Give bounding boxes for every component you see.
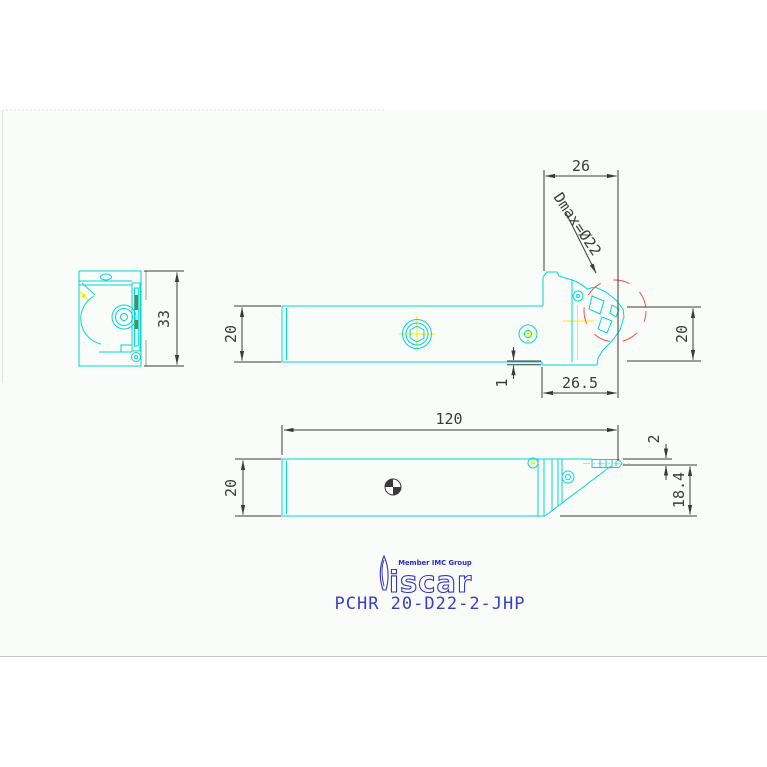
dim-33-text: 33 <box>155 310 173 328</box>
dim-26-text: 26 <box>572 157 590 175</box>
dim-20l-text: 20 <box>222 325 240 343</box>
member-imc-group-text: Member IMC Group <box>398 559 472 567</box>
technical-drawing-canvas: 26 20 20 1 26.5 33 120 20 2 18.4 Dmax=Ø2… <box>0 0 767 767</box>
end-view-insert-mark-1 <box>135 295 138 310</box>
dim-1-text: 1 <box>493 378 511 387</box>
dim-20b-text: 20 <box>222 479 240 497</box>
end-view-insert-mark-2 <box>135 320 138 329</box>
dim-26p5-text: 26.5 <box>562 374 598 392</box>
centroid-symbol <box>385 479 401 495</box>
cad-drawing-page: 26 20 20 1 26.5 33 120 20 2 18.4 Dmax=Ø2… <box>0 0 767 767</box>
dim-18p4-text: 18.4 <box>670 472 688 508</box>
dim-20r-text: 20 <box>673 325 691 343</box>
part-number: PCHR 20-D22-2-JHP <box>335 594 526 614</box>
bottom-screw-center-dot <box>531 461 535 465</box>
end-view-center-dot <box>82 294 86 298</box>
dim-2-text: 2 <box>645 434 663 443</box>
dim-120-text: 120 <box>435 410 462 428</box>
